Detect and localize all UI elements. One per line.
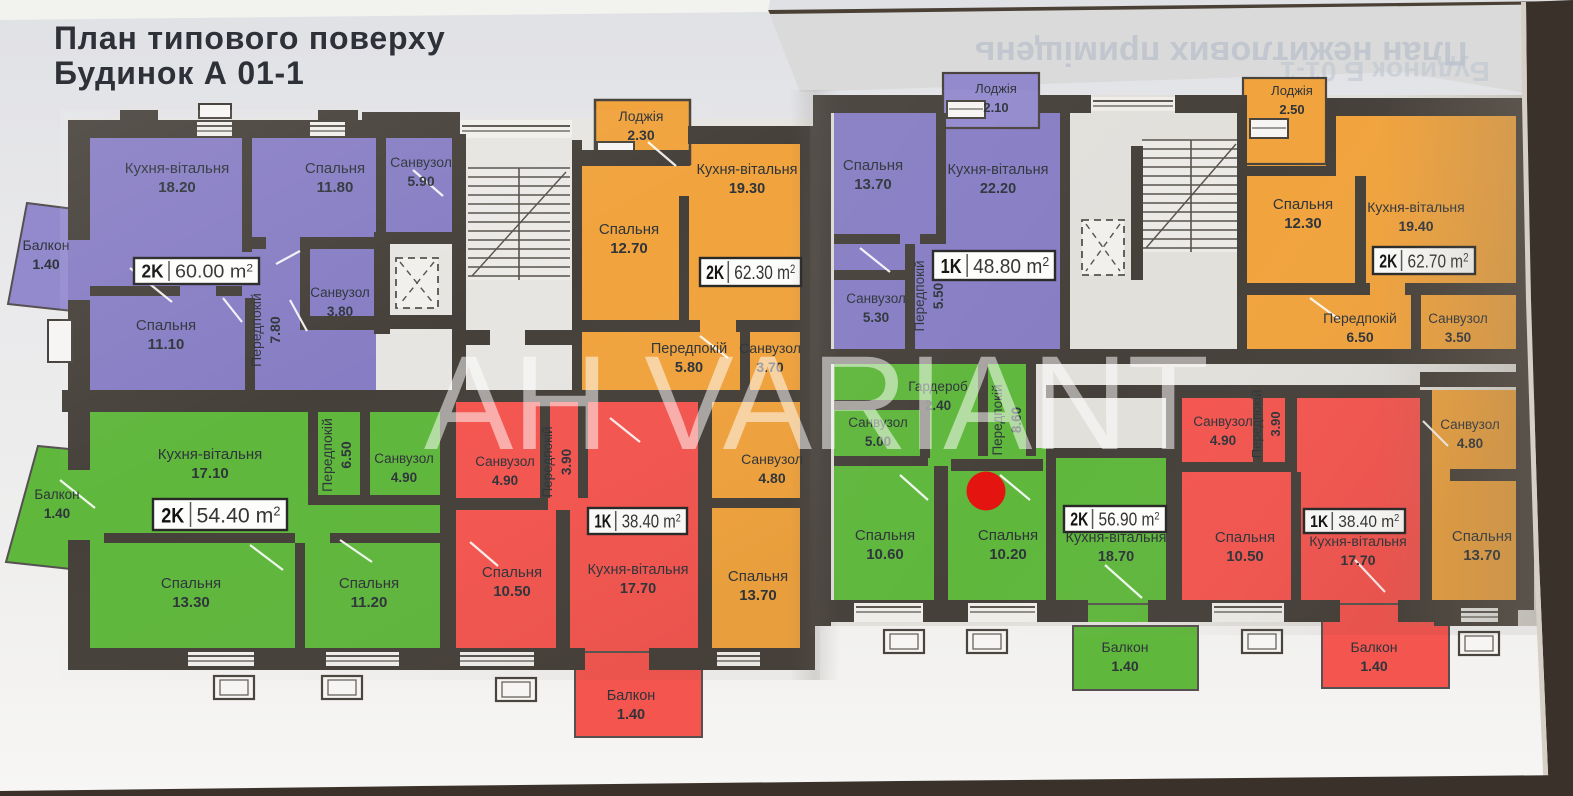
svg-text:Балкон: Балкон — [1351, 639, 1398, 655]
svg-text:АН VARIANT: АН VARIANT — [424, 329, 1208, 478]
svg-text:Балкон: Балкон — [1102, 639, 1149, 655]
svg-text:План типового поверху: План типового поверху — [54, 20, 446, 56]
svg-text:1.40: 1.40 — [1111, 658, 1138, 674]
svg-text:1.40: 1.40 — [1360, 658, 1387, 674]
svg-text:Будинок А 01-1: Будинок А 01-1 — [54, 55, 305, 91]
svg-text:Балкон: Балкон — [607, 688, 656, 704]
svg-text:1.40: 1.40 — [617, 707, 645, 723]
svg-text:1.40: 1.40 — [32, 256, 59, 272]
